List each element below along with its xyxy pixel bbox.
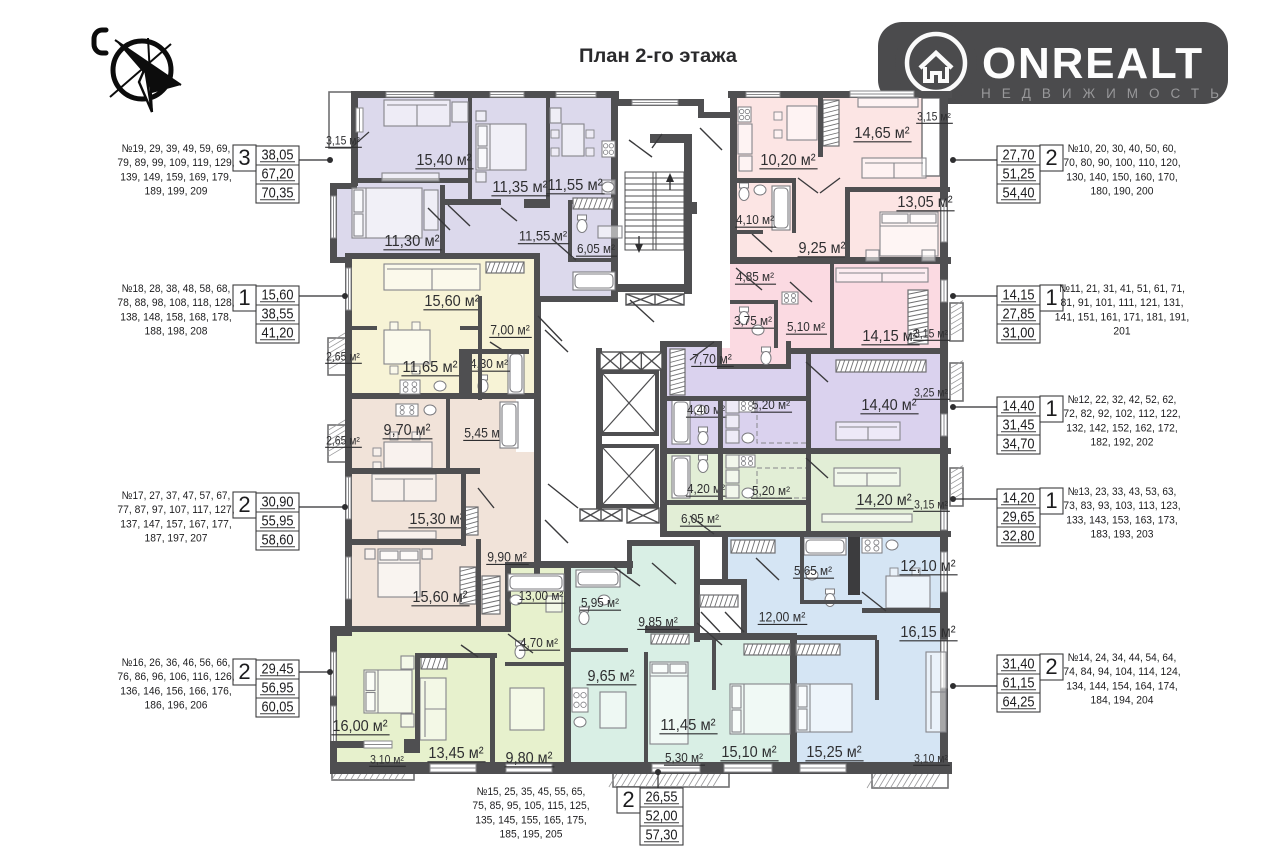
svg-text:3,15 м²: 3,15 м² [326, 136, 360, 148]
svg-text:26,55: 26,55 [646, 789, 678, 806]
svg-text:189, 199, 209: 189, 199, 209 [145, 186, 208, 198]
svg-text:15,60: 15,60 [262, 287, 294, 304]
svg-text:132, 142, 152, 162, 172,: 132, 142, 152, 162, 172, [1066, 422, 1178, 434]
svg-text:НЕДВИЖИМОСТЬ: НЕДВИЖИМОСТЬ [981, 86, 1230, 101]
svg-text:9,70 м²: 9,70 м² [384, 422, 431, 439]
svg-text:4,85 м²: 4,85 м² [736, 269, 775, 284]
svg-text:12,00 м²: 12,00 м² [759, 609, 806, 624]
svg-text:2,65 м²: 2,65 м² [326, 352, 360, 364]
svg-text:3,10 м²: 3,10 м² [914, 754, 948, 766]
svg-text:13,00 м²: 13,00 м² [519, 588, 564, 603]
svg-text:27,85: 27,85 [1003, 306, 1035, 323]
svg-text:61,15: 61,15 [1003, 675, 1035, 692]
svg-text:55,95: 55,95 [262, 513, 294, 530]
svg-text:12,10 м²: 12,10 м² [900, 558, 956, 575]
svg-text:№10, 20, 30, 40, 50, 60,: №10, 20, 30, 40, 50, 60, [1068, 143, 1177, 155]
svg-text:№11, 21, 31, 41, 51, 61, 71,: №11, 21, 31, 41, 51, 61, 71, [1059, 283, 1185, 295]
svg-text:3,25 м²: 3,25 м² [914, 388, 948, 400]
svg-text:136, 146, 156, 166, 176,: 136, 146, 156, 166, 176, [120, 685, 232, 697]
svg-text:5,95 м²: 5,95 м² [581, 595, 620, 610]
svg-text:1: 1 [238, 285, 250, 310]
svg-text:5,10 м²: 5,10 м² [787, 319, 826, 334]
svg-text:2: 2 [238, 492, 250, 517]
svg-text:57,30: 57,30 [646, 827, 678, 844]
svg-text:78, 88, 98, 108, 118, 128,: 78, 88, 98, 108, 118, 128, [117, 297, 234, 309]
svg-text:1: 1 [1045, 396, 1057, 421]
svg-text:14,20: 14,20 [1003, 490, 1035, 507]
svg-text:ONREALT: ONREALT [982, 39, 1204, 88]
svg-text:77, 87, 97, 107, 117, 127,: 77, 87, 97, 107, 117, 127, [117, 504, 234, 516]
svg-text:29,45: 29,45 [262, 661, 294, 678]
svg-text:133, 143, 153, 163, 173,: 133, 143, 153, 163, 173, [1066, 514, 1178, 526]
svg-text:79, 89, 99, 109, 119, 129,: 79, 89, 99, 109, 119, 129, [117, 157, 234, 169]
svg-text:75, 85, 95, 105, 115, 125,: 75, 85, 95, 105, 115, 125, [472, 800, 589, 812]
svg-text:9,65 м²: 9,65 м² [588, 668, 635, 685]
svg-text:1: 1 [1045, 488, 1057, 513]
svg-text:№16, 26, 36, 46, 56, 66,: №16, 26, 36, 46, 56, 66, [122, 657, 231, 669]
svg-text:14,65 м²: 14,65 м² [854, 125, 910, 142]
svg-text:81, 91, 101, 111, 121, 131,: 81, 91, 101, 111, 121, 131, [1061, 297, 1184, 309]
svg-text:16,15 м²: 16,15 м² [900, 624, 956, 641]
svg-text:15,40 м²: 15,40 м² [416, 152, 472, 169]
svg-text:27,70: 27,70 [1003, 147, 1035, 164]
svg-text:9,80 м²: 9,80 м² [506, 750, 553, 767]
svg-text:14,40: 14,40 [1003, 398, 1035, 415]
svg-text:134, 144, 154, 164, 174,: 134, 144, 154, 164, 174, [1066, 680, 1178, 692]
svg-text:186, 196, 206: 186, 196, 206 [145, 700, 208, 712]
svg-text:201: 201 [1113, 326, 1130, 338]
svg-text:185, 195, 205: 185, 195, 205 [500, 829, 563, 841]
svg-text:60,05: 60,05 [262, 699, 294, 716]
svg-text:31,45: 31,45 [1003, 417, 1035, 434]
svg-text:7,00 м²: 7,00 м² [490, 322, 530, 337]
svg-text:15,25 м²: 15,25 м² [806, 744, 862, 761]
svg-text:4,10 м²: 4,10 м² [736, 212, 775, 227]
svg-text:138, 148, 158, 168, 178,: 138, 148, 158, 168, 178, [120, 311, 232, 323]
svg-text:2: 2 [238, 659, 250, 684]
svg-text:54,40: 54,40 [1003, 185, 1035, 202]
svg-text:58,60: 58,60 [262, 532, 294, 549]
svg-text:182, 192, 202: 182, 192, 202 [1091, 437, 1154, 449]
svg-text:10,20 м²: 10,20 м² [760, 152, 816, 169]
svg-text:31,40: 31,40 [1003, 656, 1035, 673]
svg-text:5,65 м²: 5,65 м² [794, 563, 833, 578]
svg-text:76, 86, 96, 106, 116, 126,: 76, 86, 96, 106, 116, 126, [117, 671, 234, 683]
svg-text:План 2-го этажа: План 2-го этажа [579, 46, 737, 67]
svg-text:2: 2 [1045, 654, 1057, 679]
svg-text:9,25 м²: 9,25 м² [799, 240, 846, 257]
svg-text:14,15 м²: 14,15 м² [862, 328, 918, 345]
svg-text:11,30 м²: 11,30 м² [384, 233, 440, 250]
svg-text:9,85 м²: 9,85 м² [638, 614, 678, 629]
svg-text:5,20 м²: 5,20 м² [752, 483, 791, 498]
svg-text:2: 2 [1045, 145, 1057, 170]
svg-text:13,45 м²: 13,45 м² [428, 745, 484, 762]
svg-text:73, 83, 93, 103, 113, 123,: 73, 83, 93, 103, 113, 123, [1063, 500, 1180, 512]
svg-text:16,00 м²: 16,00 м² [332, 718, 388, 735]
svg-text:9,90 м²: 9,90 м² [487, 549, 527, 564]
svg-text:6,05 м²: 6,05 м² [577, 241, 616, 256]
svg-text:3,10 м²: 3,10 м² [370, 755, 404, 767]
svg-text:№17, 27, 37, 47, 57, 67,: №17, 27, 37, 47, 57, 67, [122, 490, 231, 502]
svg-text:41,20: 41,20 [262, 325, 294, 342]
svg-text:№18, 28, 38, 48, 58, 68,: №18, 28, 38, 48, 58, 68, [122, 283, 231, 295]
svg-text:13,05 м²: 13,05 м² [897, 194, 953, 211]
svg-text:11,45 м²: 11,45 м² [660, 717, 716, 734]
svg-text:72, 82, 92, 102, 112, 122,: 72, 82, 92, 102, 112, 122, [1063, 408, 1180, 420]
svg-text:3,15 м²: 3,15 м² [914, 500, 948, 512]
svg-text:11,65 м²: 11,65 м² [402, 359, 458, 376]
svg-text:5,45 м²: 5,45 м² [464, 425, 504, 440]
svg-text:11,35 м²: 11,35 м² [492, 179, 548, 196]
svg-text:№13, 23, 33, 43, 53, 63,: №13, 23, 33, 43, 53, 63, [1068, 486, 1177, 498]
svg-text:№14, 24, 34, 44, 54, 64,: №14, 24, 34, 44, 54, 64, [1068, 652, 1177, 664]
svg-text:15,60 м²: 15,60 м² [424, 293, 480, 310]
svg-text:70, 80, 90, 100, 110, 120,: 70, 80, 90, 100, 110, 120, [1063, 157, 1180, 169]
svg-text:3,15 м²: 3,15 м² [914, 329, 948, 341]
svg-text:31,00: 31,00 [1003, 325, 1035, 342]
svg-text:1: 1 [1045, 285, 1057, 310]
svg-text:52,00: 52,00 [646, 808, 678, 825]
svg-text:№15, 25, 35, 45, 55, 65,: №15, 25, 35, 45, 55, 65, [477, 786, 586, 798]
svg-text:51,25: 51,25 [1003, 166, 1035, 183]
svg-text:5,30 м²: 5,30 м² [665, 750, 704, 765]
svg-text:74, 84, 94, 104, 114, 124,: 74, 84, 94, 104, 114, 124, [1063, 666, 1180, 678]
svg-text:183, 193, 203: 183, 193, 203 [1091, 529, 1154, 541]
svg-text:187, 197, 207: 187, 197, 207 [145, 533, 208, 545]
svg-text:11,55 м²: 11,55 м² [547, 177, 603, 194]
svg-text:64,25: 64,25 [1003, 694, 1035, 711]
svg-text:3: 3 [238, 145, 250, 170]
svg-text:3,15 м²: 3,15 м² [917, 112, 951, 124]
svg-text:139, 149, 159, 169, 179,: 139, 149, 159, 169, 179, [120, 171, 232, 183]
svg-text:188, 198, 208: 188, 198, 208 [145, 326, 208, 338]
svg-text:14,15: 14,15 [1003, 287, 1035, 304]
svg-text:38,05: 38,05 [262, 147, 294, 164]
svg-text:38,55: 38,55 [262, 306, 294, 323]
svg-text:137, 147, 157, 167, 177,: 137, 147, 157, 167, 177, [120, 518, 232, 530]
svg-text:184, 194, 204: 184, 194, 204 [1091, 695, 1154, 707]
svg-text:34,70: 34,70 [1003, 436, 1035, 453]
svg-text:11,55 м²: 11,55 м² [519, 227, 568, 243]
svg-text:№19, 29, 39, 49, 59, 69,: №19, 29, 39, 49, 59, 69, [122, 143, 231, 155]
svg-text:№12, 22, 32, 42, 52, 62,: №12, 22, 32, 42, 52, 62, [1068, 394, 1177, 406]
svg-text:70,35: 70,35 [262, 185, 294, 202]
svg-text:14,40 м²: 14,40 м² [861, 397, 917, 414]
svg-text:67,20: 67,20 [262, 166, 294, 183]
svg-text:30,90: 30,90 [262, 494, 294, 511]
svg-text:4,30 м²: 4,30 м² [470, 356, 509, 371]
svg-text:15,30 м²: 15,30 м² [409, 511, 465, 528]
svg-text:2: 2 [622, 787, 634, 812]
svg-text:14,20 м²: 14,20 м² [856, 492, 912, 509]
svg-text:56,95: 56,95 [262, 680, 294, 697]
svg-text:15,60 м²: 15,60 м² [412, 589, 468, 606]
svg-text:141, 151, 161, 171, 181, 191,: 141, 151, 161, 171, 181, 191, [1055, 311, 1189, 323]
svg-text:180, 190, 200: 180, 190, 200 [1091, 186, 1154, 198]
svg-text:3,75 м²: 3,75 м² [734, 313, 773, 328]
svg-text:2,65 м²: 2,65 м² [326, 436, 360, 448]
svg-text:15,10 м²: 15,10 м² [721, 744, 777, 761]
svg-text:32,80: 32,80 [1003, 528, 1035, 545]
svg-text:130, 140, 150, 160, 170,: 130, 140, 150, 160, 170, [1066, 171, 1178, 183]
svg-text:29,65: 29,65 [1003, 509, 1035, 526]
svg-text:135, 145, 155, 165, 175,: 135, 145, 155, 165, 175, [475, 814, 587, 826]
